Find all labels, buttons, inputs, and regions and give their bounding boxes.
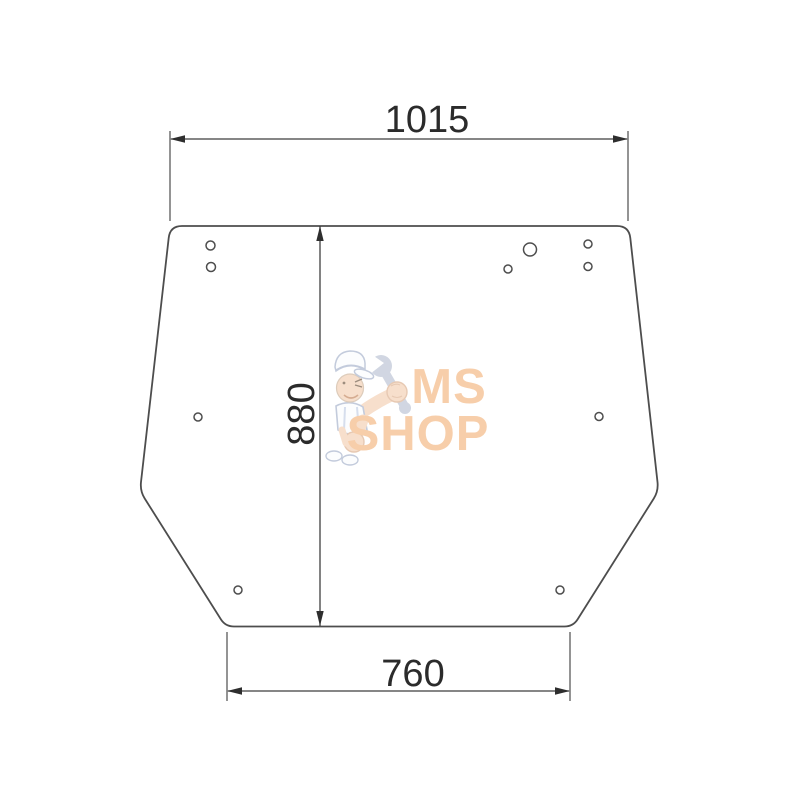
arrow-right-icon [555,687,570,695]
mascot-thumb [342,430,346,443]
watermark-text-shop: SHOP [347,407,490,461]
arrow-right-icon [613,135,628,143]
mounting-hole [194,413,202,421]
mounting-hole [584,240,592,248]
mounting-hole [207,263,216,272]
mounting-hole [595,413,603,421]
technical-drawing-page: MS SHOP 1015 880 760 [0,0,799,799]
dimension-label-height: 880 [281,382,323,445]
mounting-hole [556,586,564,594]
mounting-hole [584,263,592,271]
mounting-hole [504,265,512,273]
glass-dimension-diagram: MS SHOP 1015 880 760 [0,0,799,799]
mounting-hole [524,243,537,256]
mascot-shoe [326,451,342,461]
mascot-fist [387,382,407,402]
dimension-bottom-width: 760 [227,632,570,701]
arrow-left-icon [227,687,242,695]
mounting-hole [234,586,242,594]
dimension-label-top-width: 1015 [385,99,470,141]
dimension-top-width: 1015 [170,99,628,221]
watermark-text-ms: MS [411,360,487,414]
arrow-left-icon [170,135,185,143]
dimension-label-bottom-width: 760 [381,653,444,695]
mounting-hole [206,241,215,250]
